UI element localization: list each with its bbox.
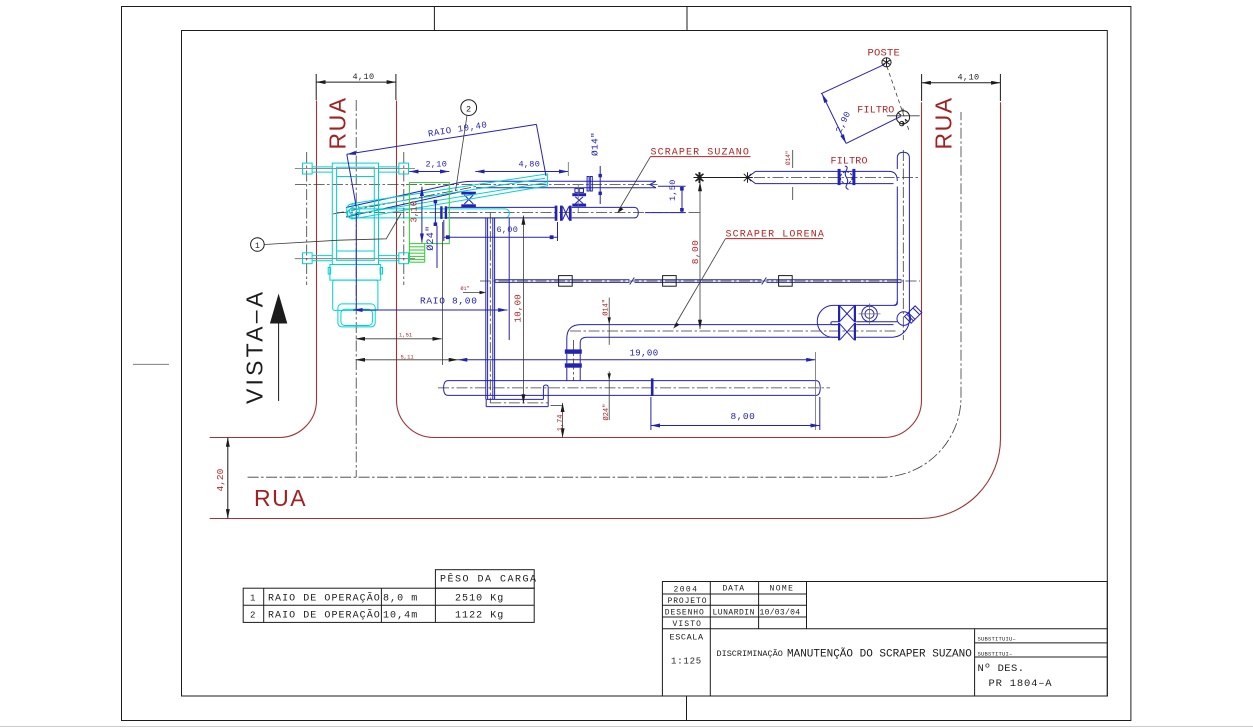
svg-text:FILTRO: FILTRO (831, 156, 868, 167)
svg-text:MANUTENÇÃO DO SCRAPER SUZANO: MANUTENÇÃO DO SCRAPER SUZANO (787, 648, 972, 661)
svg-text:PÊSO DA CARGA: PÊSO DA CARGA (440, 572, 538, 586)
svg-text:19,00: 19,00 (630, 348, 659, 358)
svg-text:10,00: 10,00 (514, 294, 524, 323)
svg-text:LUNARDIN: LUNARDIN (713, 609, 755, 618)
svg-text:4,10: 4,10 (958, 73, 980, 83)
svg-text:2: 2 (466, 104, 471, 114)
svg-text:10/03/04: 10/03/04 (760, 609, 801, 618)
svg-text:Ø24″: Ø24″ (425, 226, 437, 251)
svg-text:Ø14″: Ø14″ (602, 299, 611, 316)
svg-text:1: 1 (250, 594, 255, 604)
svg-text:PROJETO: PROJETO (668, 597, 708, 606)
svg-text:8,00: 8,00 (690, 240, 701, 264)
svg-text:5,11: 5,11 (401, 353, 415, 360)
svg-text:1: 1 (255, 242, 260, 251)
svg-text:NOME: NOME (770, 585, 795, 594)
svg-text:DISCRIMINAÇÃO: DISCRIMINAÇÃO (717, 648, 783, 659)
svg-text:1:125: 1:125 (671, 657, 702, 667)
svg-text:VISTA–A: VISTA–A (242, 289, 268, 404)
svg-text:Ø1″: Ø1″ (461, 285, 470, 292)
svg-text:VISTO: VISTO (673, 620, 703, 629)
svg-text:1,74: 1,74 (557, 414, 565, 431)
svg-text:2,10: 2,10 (426, 160, 448, 170)
svg-text:DATA: DATA (723, 585, 745, 594)
svg-text:RUA: RUA (325, 96, 351, 149)
svg-text:1,50: 1,50 (668, 179, 678, 201)
svg-text:DESENHO: DESENHO (665, 609, 705, 618)
svg-text:SUBSTITUI–: SUBSTITUI– (978, 651, 1013, 658)
svg-text:4,20: 4,20 (215, 468, 226, 491)
svg-text:POSTE: POSTE (868, 48, 901, 60)
svg-text:RAIO DE OPERAÇÃO: RAIO DE OPERAÇÃO (268, 592, 381, 605)
svg-text:2510 Kg: 2510 Kg (455, 594, 504, 605)
svg-text:3,10: 3,10 (410, 201, 420, 223)
svg-text:Ø14″: Ø14″ (785, 151, 792, 165)
svg-text:FILTRO: FILTRO (857, 106, 894, 117)
svg-text:2: 2 (250, 611, 255, 621)
svg-text:1122 Kg: 1122 Kg (455, 611, 504, 622)
svg-text:RAIO DE OPERAÇÃO: RAIO DE OPERAÇÃO (268, 609, 381, 622)
svg-text:SUBSTITUIU–: SUBSTITUIU– (978, 636, 1017, 643)
svg-text:ESCALA: ESCALA (670, 633, 705, 643)
svg-text:4,10: 4,10 (353, 72, 375, 82)
svg-text:Ø24″: Ø24″ (602, 404, 611, 421)
svg-text:8,00: 8,00 (731, 411, 756, 422)
svg-text:1,51: 1,51 (399, 332, 413, 339)
svg-text:10,4m: 10,4m (383, 611, 418, 622)
svg-text:2004: 2004 (674, 586, 699, 595)
svg-text:RUA: RUA (254, 485, 307, 511)
svg-text:RUA: RUA (931, 96, 957, 149)
svg-text:Ø14″: Ø14″ (590, 132, 601, 156)
svg-text:Nº DES.: Nº DES. (978, 663, 1025, 675)
svg-text:8,0 m: 8,0 m (383, 594, 418, 605)
svg-text:4,80: 4,80 (519, 160, 541, 170)
svg-text:RAIO 8,00: RAIO 8,00 (420, 296, 478, 307)
svg-text:PR 1804–A: PR 1804–A (989, 678, 1053, 690)
svg-text:6,00: 6,00 (497, 225, 519, 235)
